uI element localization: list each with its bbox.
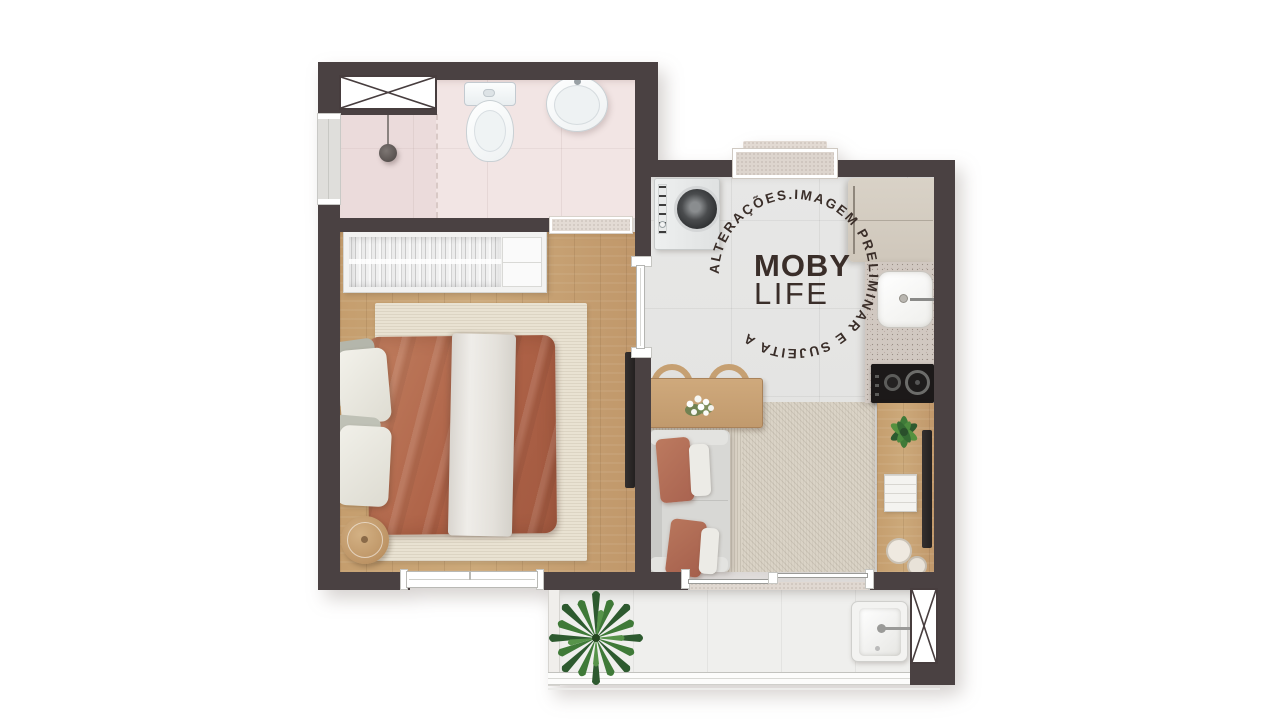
- bed-pillow: [336, 347, 392, 425]
- bathroom-door-threshold: [550, 217, 632, 233]
- living-rug-pattern: [742, 402, 875, 572]
- slider-jamb: [865, 569, 874, 589]
- bedroom-tv-panel: [625, 352, 635, 488]
- window-mullion: [469, 572, 471, 580]
- wardrobe-rail: [349, 259, 501, 264]
- watermark-brand-bottom: LIFE: [754, 276, 829, 311]
- toilet-bowl-inner: [474, 110, 506, 152]
- balcony-sliding-door-rail: [772, 573, 868, 578]
- sink-drain-icon: [899, 294, 908, 303]
- bed-pillow: [336, 425, 392, 508]
- sofa-pillow: [698, 527, 719, 574]
- wardrobe: [343, 231, 547, 293]
- wall-kitchen-top-left: [650, 160, 735, 177]
- balcony-sliding-door-rail: [688, 579, 778, 584]
- floor-plan: ALTERAÇÕES.IMAGEM PRELIMINAR E SUJEITA A…: [0, 0, 1280, 720]
- slider-meeting-stile: [768, 572, 778, 584]
- shower-partition: [436, 114, 438, 218]
- bathroom-window: [318, 114, 340, 204]
- bed-runner: [448, 333, 516, 536]
- wardrobe-shelves: [502, 237, 542, 287]
- wall-right-bathroom: [635, 62, 658, 162]
- sofa-pillow: [689, 444, 712, 497]
- washer-knob: [659, 221, 666, 228]
- shower-head-icon: [379, 144, 397, 162]
- wall-divider-lower: [635, 356, 651, 590]
- bedside-table: [341, 516, 389, 564]
- cooktop: [871, 364, 934, 403]
- sideboard-plant-icon: [883, 411, 925, 453]
- bedroom-pocket-door: [636, 265, 645, 349]
- balcony-plant-icon: [548, 590, 644, 686]
- table-flowers-icon: [676, 384, 722, 430]
- sideboard-books: [884, 474, 917, 512]
- balcony-outer-line: [548, 688, 940, 690]
- entry-door-threshold: [733, 149, 837, 178]
- burner-small-icon: [884, 374, 901, 391]
- bedside-table-decor: [361, 536, 368, 543]
- window-glass-line: [328, 119, 329, 199]
- ventilation-shaft-icon: [910, 588, 938, 664]
- wall-balcony-bottom-right: [910, 662, 955, 685]
- shower-hose: [387, 112, 389, 148]
- wall-kitchen-right: [934, 160, 955, 590]
- cooktop-controls: [875, 370, 879, 396]
- floor-plan-canvas: ALTERAÇÕES.IMAGEM PRELIMINAR E SUJEITA A…: [0, 0, 1280, 720]
- window-glass-line: [409, 579, 535, 580]
- wall-bathroom-bedroom: [340, 218, 552, 232]
- pocket-door-line: [640, 268, 641, 346]
- washbasin-inner: [554, 85, 600, 125]
- bedroom-window: [406, 571, 538, 588]
- wall-bedroom-bottom-left: [318, 572, 410, 590]
- burner-large-icon: [905, 370, 930, 395]
- wardrobe-shelf-divider: [503, 262, 541, 263]
- ventilation-shaft-icon: [339, 75, 437, 110]
- watermark: ALTERAÇÕES.IMAGEM PRELIMINAR E SUJEITA A…: [700, 180, 888, 368]
- burner-center-dot: [915, 380, 920, 385]
- toilet-flush-button: [483, 89, 495, 97]
- wall-bedroom-bottom-right: [536, 572, 688, 590]
- wall-divider-upper: [635, 162, 651, 258]
- tank-drain-icon: [875, 646, 880, 651]
